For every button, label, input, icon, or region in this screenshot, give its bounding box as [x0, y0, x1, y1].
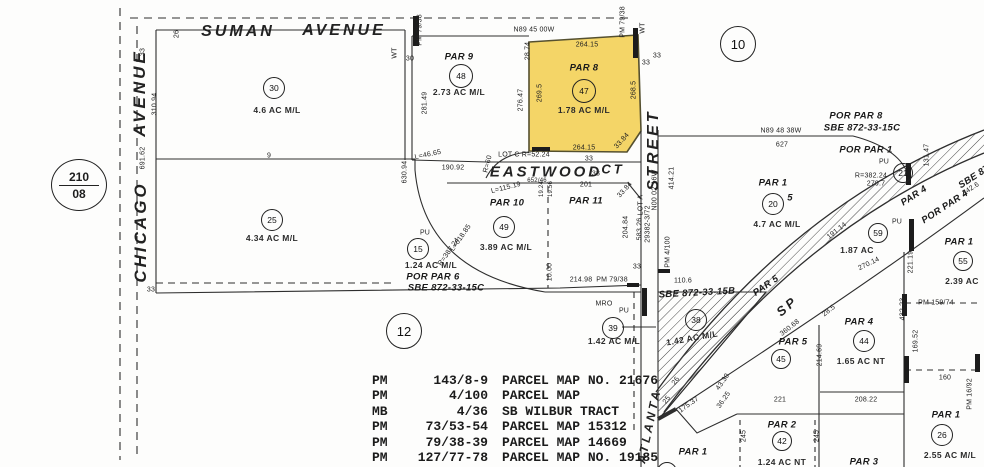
label-pm-79-38: PM 79/38 — [620, 6, 627, 38]
parcel-circle-48[interactable]: 48 — [449, 64, 473, 88]
label-630-94: 630.94 — [402, 161, 409, 184]
parcel-circle-26[interactable]: 26 — [931, 424, 953, 446]
label-201: 201 — [580, 182, 592, 189]
reference-page: 73/53-54 — [402, 419, 488, 434]
label-par-3: PAR 3 — [850, 457, 879, 467]
label-270-14: 270.14 — [857, 256, 880, 272]
reference-description: PARCEL MAP NO. 21676 — [502, 373, 658, 388]
label-suman: SUMAN — [201, 23, 275, 41]
label-par-1: PAR 1 — [932, 410, 961, 421]
label-33: 33 — [592, 171, 600, 178]
label-264-15: 264.15 — [576, 42, 599, 49]
label-36-25: 36.25 — [716, 390, 732, 409]
reference-page: 79/38-39 — [402, 435, 488, 450]
label-9: 9 — [267, 153, 271, 160]
label-360-68: 360.68 — [779, 318, 801, 337]
label-ct: CT — [601, 162, 624, 177]
label-310-94: 310.94 — [152, 93, 159, 116]
label-par-8: PAR 8 — [570, 63, 599, 74]
label-sbe-872-33-15b: SBE 872-33-15B — [658, 286, 735, 301]
label-204-84: 204.84 — [623, 216, 630, 239]
reference-list-row: PM73/53-54PARCEL MAP 15312 — [372, 419, 658, 434]
reference-book: MB — [372, 404, 402, 419]
label-221-19: 221.19 — [908, 251, 915, 274]
label-414-21: 414.21 — [669, 167, 676, 190]
parcel-circle-44[interactable]: 44 — [853, 330, 875, 352]
label-4-6-ac-m-l: 4.6 AC M/L — [253, 105, 300, 115]
label-33: 33 — [642, 60, 650, 67]
reference-book: PM — [372, 450, 402, 465]
label-1-65-ac-nt: 1.65 AC NT — [837, 356, 886, 366]
label-par-5: PAR 5 — [779, 337, 808, 348]
reference-book: PM — [372, 373, 402, 388]
label-1-24-ac-m-l: 1.24 AC M/L — [405, 260, 457, 270]
label-264-15: 264.15 — [573, 145, 596, 152]
reference-description: SB WILBUR TRACT — [502, 404, 619, 419]
label-269-5: 269.5 — [537, 84, 544, 103]
label-33: 33 — [633, 264, 641, 271]
label-par-1: PAR 1 — [759, 178, 788, 189]
label-33: 33 — [653, 53, 661, 60]
label-30: 30 — [406, 56, 414, 63]
label-25: 25 — [662, 395, 672, 406]
parcel-circle-55[interactable]: 55 — [953, 251, 973, 271]
label-sp: SP — [773, 293, 801, 319]
label-4-34-ac-m-l: 4.34 AC M/L — [246, 233, 298, 243]
parcel-circle-39[interactable]: 39 — [602, 317, 624, 339]
label-33-84: 33.84 — [613, 132, 631, 150]
parcel-circle-25[interactable]: 25 — [261, 209, 283, 231]
reference-page: 4/36 — [402, 404, 488, 419]
label-2-55-ac-m-l: 2.55 AC M/L — [924, 450, 976, 460]
label-26: 26 — [174, 30, 181, 38]
label-por-par-6: POR PAR 6 — [406, 272, 459, 283]
label-268-5: 268.5 — [631, 81, 638, 100]
label-208-22: 208.22 — [855, 397, 878, 404]
label-sbe-872-33-15c: SBE 872-33-15C — [824, 123, 901, 134]
label-191-14: 191.14 — [826, 221, 848, 240]
parcel-circle-12[interactable]: 12 — [386, 313, 422, 349]
label-par-1: PAR 1 — [679, 447, 708, 458]
label-131-47: 131.47 — [924, 144, 931, 167]
parcel-circle-15[interactable]: 15 — [407, 238, 429, 260]
label-28-74: 28.74 — [525, 42, 532, 61]
label-110-6: 110.6 — [674, 278, 692, 285]
parcel-circle-49[interactable]: 49 — [493, 216, 515, 238]
label-691-62: 691.62 — [140, 147, 147, 170]
reference-book: PM — [372, 388, 402, 403]
label-par-5: PAR 5 — [751, 273, 781, 299]
label-par-4: PAR 4 — [845, 317, 874, 328]
label-pm-16-92: PM 16/92 — [967, 378, 974, 410]
reference-list-row: PM127/77-78PARCEL MAP NO. 19185 — [372, 450, 658, 465]
label-627: 627 — [776, 142, 788, 149]
label-28-5: 28.5 — [821, 304, 837, 318]
parcel-map-canvas: 210 08 SUMANAVENUECHICAGOAVENUEEASTWOODC… — [0, 0, 984, 467]
label-26: 26 — [671, 376, 681, 387]
label-n89-48-38w: N89 48 38W — [761, 128, 802, 135]
label-par-10: PAR 10 — [490, 198, 524, 209]
label-pu: PU — [892, 219, 902, 226]
label-245: 245 — [741, 430, 748, 442]
label-432-23: 432.23 — [900, 298, 907, 321]
label-pm-79-38: PM 79/38 — [596, 277, 628, 284]
label-276-47: 276.47 — [518, 89, 525, 112]
parcel-circle-41[interactable]: 41 — [657, 462, 677, 467]
label-por-par-1: POR PAR 1 — [839, 145, 892, 156]
label-2-73-ac-m-l: 2.73 AC M/L — [433, 87, 485, 97]
label-sbe-872-33-15c: SBE 872-33-15C — [408, 283, 485, 294]
reference-description: PARCEL MAP 14669 — [502, 435, 627, 450]
label-33: 33 — [140, 48, 147, 56]
label-33-84: 33.84 — [616, 181, 634, 199]
label-3-89-ac-m-l: 3.89 AC M/L — [480, 242, 532, 252]
reference-list-row: PM79/38-39PARCEL MAP 14669 — [372, 435, 658, 450]
label-l-115-19: L=115.19 — [490, 181, 521, 195]
label-10-00: 10.00 — [547, 263, 554, 282]
label-583-26: 583.26 — [637, 218, 644, 241]
label-160: 160 — [939, 375, 951, 382]
reference-page: 143/8-9 — [402, 373, 488, 388]
parcel-circle-42[interactable]: 42 — [772, 431, 792, 451]
parcel-circle-38[interactable]: 38 — [685, 309, 707, 331]
label-1-78-ac-m-l: 1.78 AC M/L — [558, 105, 610, 115]
label-214-98: 214.98 — [570, 277, 593, 284]
label-214-69: 214.69 — [817, 344, 824, 367]
label-43-30: 43.30 — [715, 372, 731, 391]
label-279-7: 279.7 — [867, 181, 886, 188]
label-l-46-65: L=46.65 — [414, 149, 442, 161]
label-n00-02-16w: N00 02 16W — [652, 170, 659, 211]
label-281-49: 281.49 — [422, 92, 429, 115]
reference-list: PM143/8-9PARCEL MAP NO. 21676PM4/100PARC… — [372, 373, 658, 465]
label-33: 33 — [585, 156, 593, 163]
label-r-382-24: R=382.24 — [855, 173, 887, 180]
reference-description: PARCEL MAP NO. 19185 — [502, 450, 658, 465]
reference-book: PM — [372, 435, 402, 450]
label-19-24: 19.24 — [539, 181, 545, 197]
reference-description: PARCEL MAP 15312 — [502, 419, 627, 434]
label-pu: PU — [619, 308, 629, 315]
reference-list-row: PM4/100PARCEL MAP — [372, 388, 658, 403]
label-chicago: CHICAGO — [131, 181, 151, 282]
label-par-4: PAR 4 — [899, 184, 929, 209]
parcel-circle-47[interactable]: 47 — [572, 79, 596, 103]
label-221: 221 — [774, 397, 786, 404]
label-245: 245 — [814, 430, 821, 442]
label-pm-4-100: PM 4/100 — [665, 236, 672, 268]
label-1-42-ac-m-l: 1.42 AC M/L — [665, 329, 718, 348]
parcel-circle-59[interactable]: 59 — [868, 223, 888, 243]
label-175-37: 175.37 — [678, 396, 701, 415]
label-lot-a: LOT A — [638, 195, 645, 216]
parcel-circle-30[interactable]: 30 — [263, 77, 285, 99]
label-por-par-8: POR PAR 8 — [829, 111, 882, 122]
reference-page: 4/100 — [402, 388, 488, 403]
label-pm-79-38: PM 79/38 — [417, 14, 424, 46]
label-lot-c-r-52-24: LOT C R=52.24 — [498, 152, 550, 159]
label-pm-159-74: PM 159/74 — [918, 300, 954, 307]
label-1-87-ac: 1.87 AC — [840, 245, 874, 255]
label-pu: PU — [420, 230, 430, 237]
label-190-92: 190.92 — [442, 165, 465, 172]
label-par-2: PAR 2 — [768, 420, 797, 431]
label-avenue: AVENUE — [302, 22, 386, 40]
label-169-52: 169.52 — [913, 330, 920, 353]
parcel-circle-21[interactable]: 21 — [893, 163, 913, 183]
label-par-11: PAR 11 — [569, 196, 603, 207]
label-29382-3-72: 29382-3/72 — [645, 205, 652, 242]
label-1-24-ac-nt: 1.24 AC NT — [758, 457, 807, 467]
label-5: 5 — [787, 193, 793, 204]
label-33: 33 — [147, 287, 155, 294]
parcel-circle-45[interactable]: 45 — [771, 349, 791, 369]
label-pu: PU — [879, 159, 889, 166]
label-wt: WT — [392, 47, 399, 58]
label-wt: WT — [640, 22, 647, 33]
label-par-1: PAR 1 — [945, 237, 974, 248]
reference-list-row: MB4/36SB WILBUR TRACT — [372, 404, 658, 419]
label-n89-45-00w: N89 45 00W — [514, 27, 555, 34]
label-19-56: 19.56 — [548, 181, 554, 197]
parcel-circle-10[interactable]: 10 — [720, 26, 756, 62]
parcel-circle-20[interactable]: 20 — [762, 193, 784, 215]
reference-description: PARCEL MAP — [502, 388, 580, 403]
label-4-7-ac-m-l: 4.7 AC M/L — [753, 219, 800, 229]
reference-page: 127/77-78 — [402, 450, 488, 465]
label-mro: MRO — [596, 301, 613, 308]
reference-list-row: PM143/8-9PARCEL MAP NO. 21676 — [372, 373, 658, 388]
label-2-39-ac: 2.39 AC — [945, 276, 979, 286]
reference-book: PM — [372, 419, 402, 434]
label-avenue: AVENUE — [130, 49, 150, 137]
label-par-9: PAR 9 — [445, 52, 474, 63]
